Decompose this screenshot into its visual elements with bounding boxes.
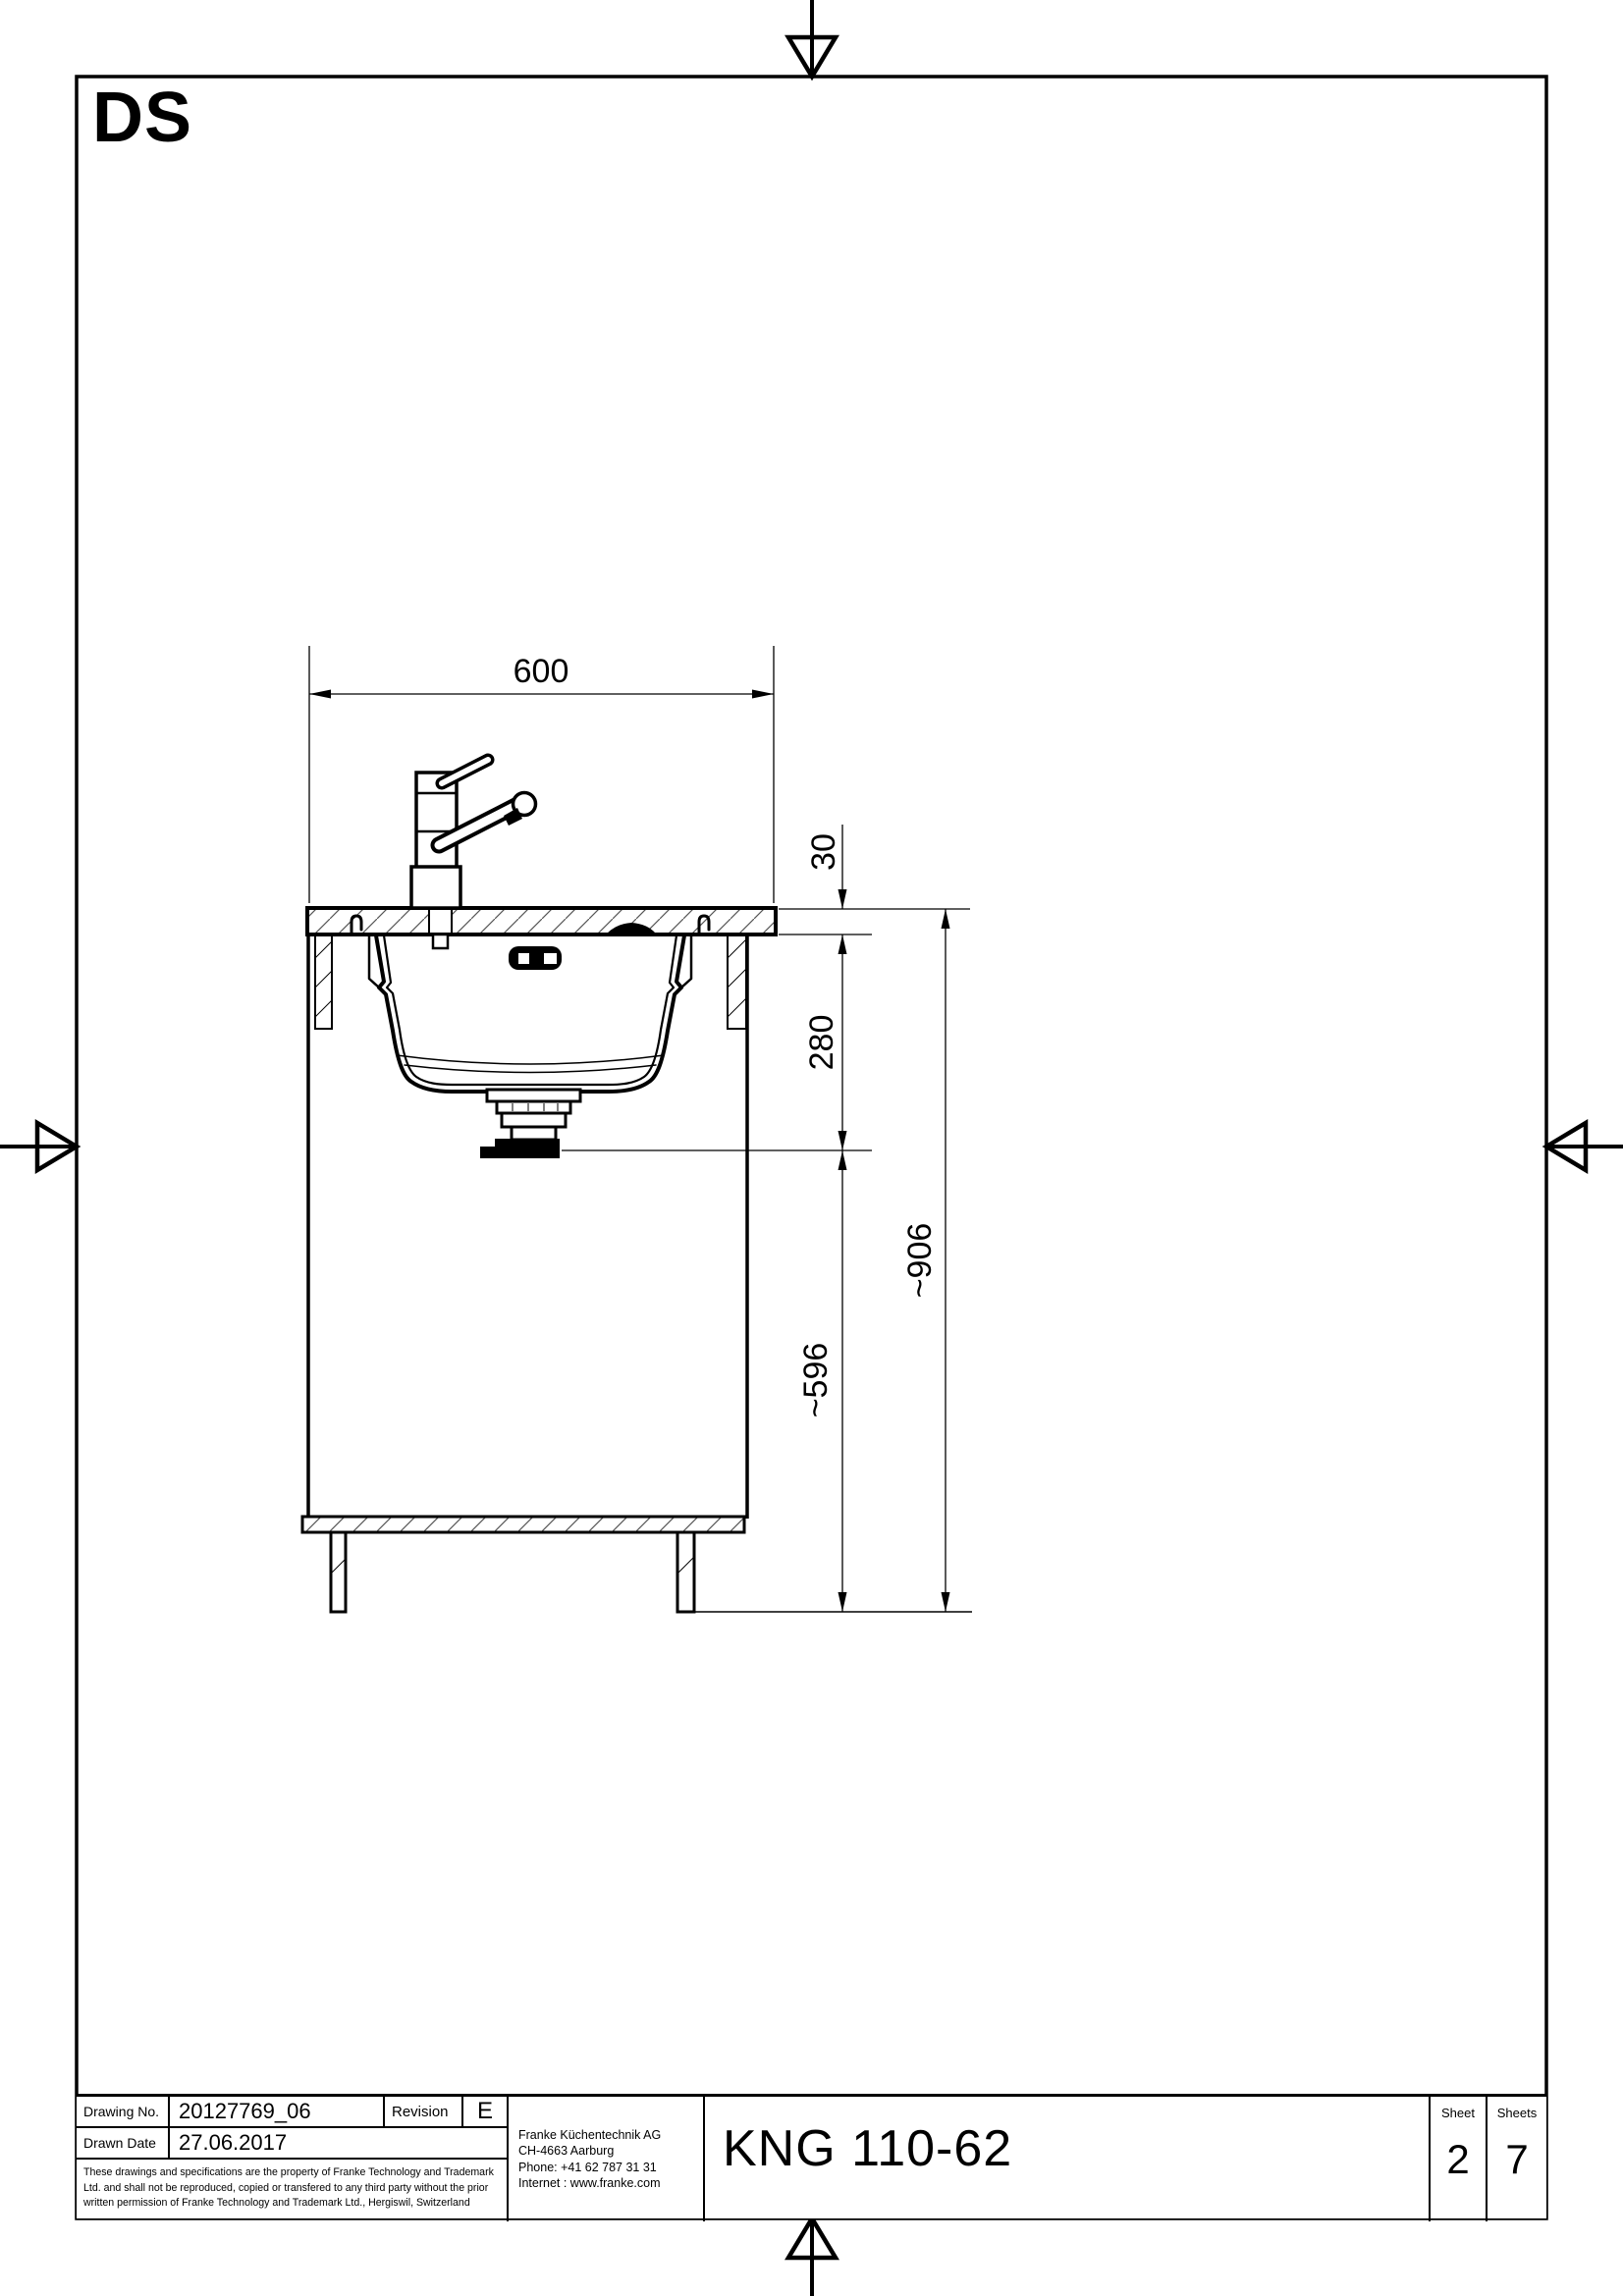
company-name: Franke Küchentechnik AG (518, 2127, 703, 2144)
technical-drawing-canvas (0, 0, 1623, 2296)
product-name: KNG 110-62 (705, 2097, 1431, 2221)
drawn-date-label: Drawn Date (77, 2128, 170, 2160)
dim-total-height: ~906 (903, 1223, 937, 1299)
legal-line: These drawings and specifications are th… (83, 2165, 503, 2181)
sheets-label: Sheets (1497, 2106, 1537, 2120)
legal-line: written permission of Franke Technology … (83, 2196, 503, 2212)
registration-mark-bottom (788, 2218, 836, 2296)
company-internet: Internet : www.franke.com (518, 2175, 703, 2192)
cabinet-bottom-panel (302, 1517, 744, 1532)
sheet-number: 2 (1446, 2136, 1469, 2183)
sheet-frame (77, 77, 1546, 2218)
revision-label: Revision (385, 2097, 463, 2128)
company-city: CH-4663 Aarburg (518, 2143, 703, 2160)
overflow-opening (509, 946, 562, 970)
dim-under-worktop-height: ~596 (799, 1343, 833, 1418)
company-block: Franke Küchentechnik AG CH-4663 Aarburg … (509, 2097, 705, 2221)
legal-notice: These drawings and specifications are th… (77, 2160, 509, 2221)
dim-cabinet-width: 600 (514, 655, 569, 688)
drain-assembly (480, 1090, 580, 1158)
registration-mark-left (0, 1123, 77, 1170)
title-block: Drawing No. 20127769_06 Revision E Drawn… (77, 2094, 1546, 2218)
dim-bowl-depth: 280 (805, 1015, 839, 1071)
zone-label: DS (92, 82, 192, 153)
registration-mark-right (1546, 1123, 1623, 1170)
faucet-body (416, 773, 457, 869)
faucet-shank-nut (433, 934, 448, 948)
drawn-date-value: 27.06.2017 (170, 2128, 509, 2160)
company-phone: Phone: +41 62 787 31 31 (518, 2160, 703, 2176)
sink-bowl-section (352, 916, 709, 1092)
registration-mark-top (788, 0, 836, 77)
drawing-sheet: DS 600 30 280 ~596 ~906 Drawing No. 2012… (0, 0, 1623, 2296)
sheet-label: Sheet (1441, 2106, 1475, 2120)
tap-hole (429, 909, 452, 934)
legal-line: Ltd. and shall not be reproduced, copied… (83, 2181, 503, 2197)
cabinet-section (302, 934, 972, 1612)
dimension-lines (309, 646, 970, 1612)
faucet-base (411, 867, 460, 908)
revision-value: E (463, 2097, 509, 2128)
sheets-cell: Sheets 7 (1488, 2097, 1546, 2221)
dim-worktop-thickness: 30 (807, 833, 840, 871)
sheets-number: 7 (1505, 2136, 1528, 2183)
drawing-no-label: Drawing No. (77, 2097, 170, 2128)
cabinet-leg-left (331, 1532, 346, 1612)
sheet-cell: Sheet 2 (1431, 2097, 1488, 2221)
drawing-no-value: 20127769_06 (170, 2097, 385, 2128)
cabinet-leg-right (677, 1532, 694, 1612)
worktop-section (307, 908, 776, 934)
drain-trap-block (495, 1139, 560, 1158)
